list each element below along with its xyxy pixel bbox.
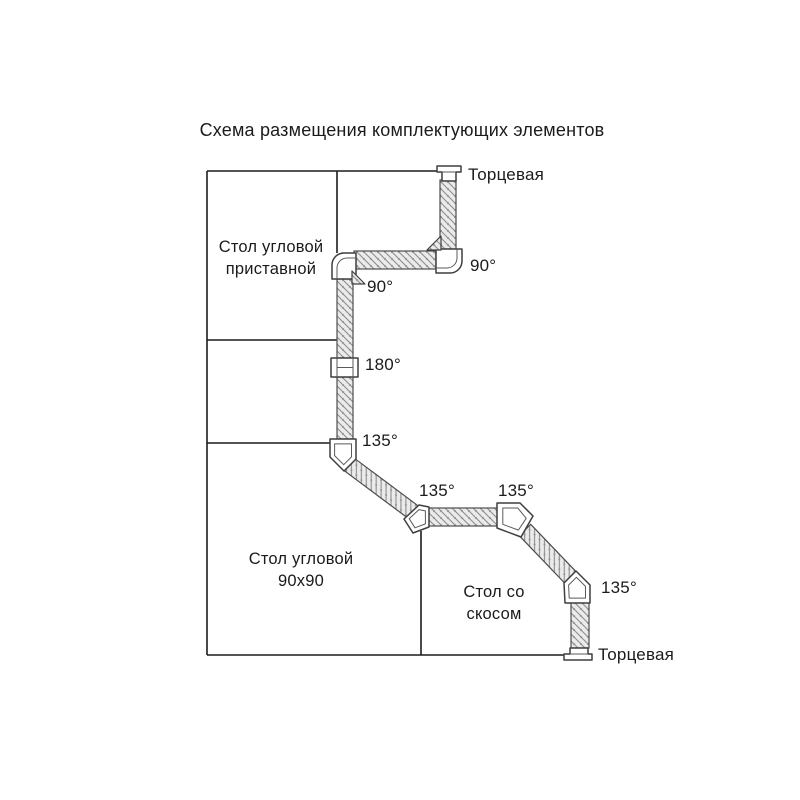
plinth-strips <box>337 180 589 648</box>
angle-label-135-3: 135° <box>498 481 534 500</box>
end-cap-top-piece <box>437 166 461 181</box>
strip-bottom-vertical <box>571 601 589 648</box>
angle-label-135-2: 135° <box>419 481 455 500</box>
page-title: Схема размещения комплектующих элементов <box>200 120 605 140</box>
table-90x90-label-line-2: 90x90 <box>278 572 324 590</box>
angle-label-90-outer: 90° <box>470 256 496 275</box>
angle-label-90-inner: 90° <box>367 277 393 296</box>
strip-diagonal-1 <box>344 459 418 517</box>
angle-label-135-1: 135° <box>362 431 398 450</box>
table-corner-attached-label-line-1: Стол угловой <box>219 238 324 256</box>
strip-mid-vertical-2 <box>337 377 353 439</box>
table-90x90-label-line-1: Стол угловой <box>249 550 354 568</box>
table-beveled-label-line-1: Стол со <box>463 583 524 601</box>
strip-top-horizontal <box>354 251 436 269</box>
angle-label-180: 180° <box>365 355 401 374</box>
plinth-layout-diagram: Схема размещения комплектующих элементов… <box>0 0 800 800</box>
strip-mid-vertical-1 <box>337 279 353 358</box>
table-corner-attached-label-line-2: приставной <box>226 260 316 278</box>
end-cap-label-bottom: Торцевая <box>598 645 674 664</box>
strip-top-vertical <box>440 180 456 249</box>
corner-90-left-gusset <box>352 271 365 284</box>
table-beveled-label-line-2: скосом <box>467 605 522 623</box>
end-cap-label-top: Торцевая <box>468 165 544 184</box>
corner-90-right-gusset <box>427 236 441 250</box>
schematic-page: Схема размещения комплектующих элементов… <box>0 0 800 800</box>
angle-label-135-4: 135° <box>601 578 637 597</box>
corner-90-right-piece <box>436 249 462 273</box>
plinth-pieces <box>330 166 592 660</box>
strip-mid-horizontal <box>428 508 498 526</box>
strip-diagonal-2 <box>519 524 575 582</box>
